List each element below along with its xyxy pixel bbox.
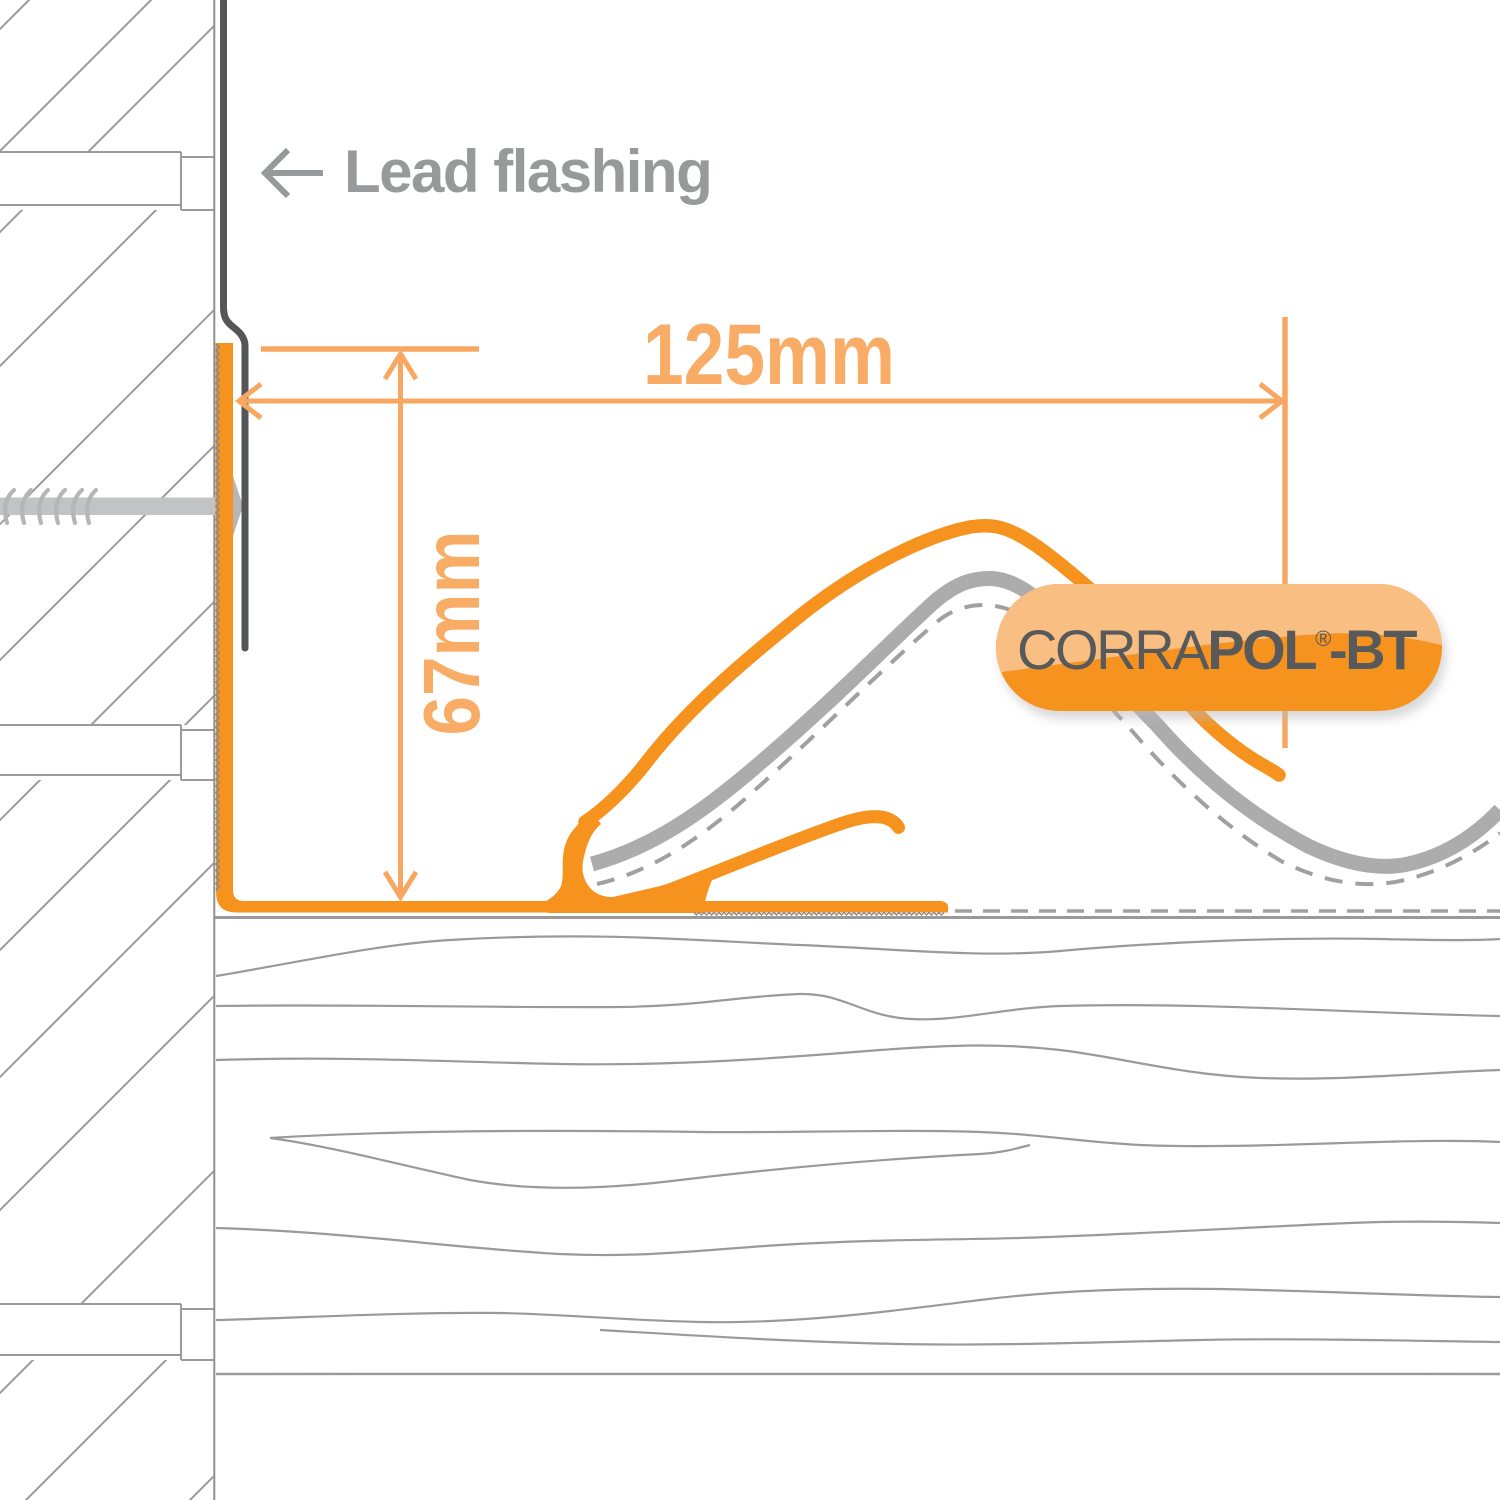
svg-text:125mm: 125mm [643,307,895,403]
svg-text:Lead flashing: Lead flashing [344,138,711,205]
svg-text:67mm: 67mm [407,531,496,736]
svg-text:CORRAPOL®-BT: CORRAPOL®-BT [1017,618,1417,681]
